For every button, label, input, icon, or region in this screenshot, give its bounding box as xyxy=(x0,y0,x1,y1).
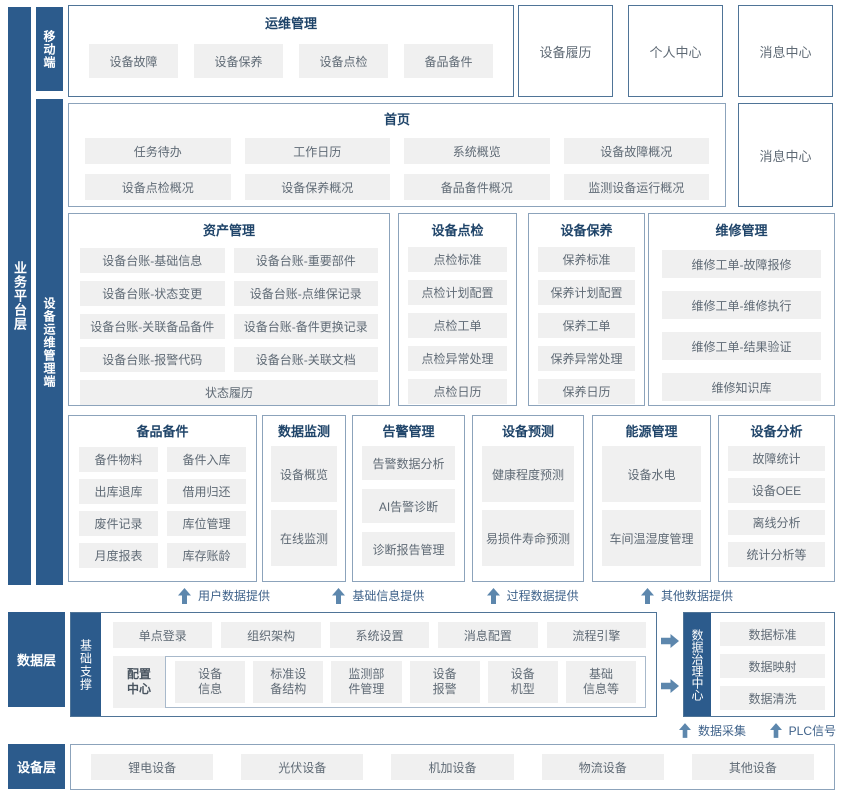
module-chip: 设备台账-关联备品备件 xyxy=(80,314,225,339)
module-chip: 数据映射 xyxy=(720,654,825,678)
bottom-flow-label: PLC信号 xyxy=(789,722,836,739)
module-chip: 其他设备 xyxy=(692,754,814,780)
layer-label-mobile: 移动端 xyxy=(41,30,58,69)
section-title-energy: 能源管理 xyxy=(602,422,701,442)
module-chip: 备品备件概况 xyxy=(404,174,550,200)
layer-label-ops-management: 设备运维管理端 xyxy=(41,297,58,388)
section-analysis: 设备分析 故障统计 设备OEE 离线分析 统计分析等 xyxy=(718,415,835,582)
section-title-analysis: 设备分析 xyxy=(728,422,825,442)
section-data-governance: 数据治理中心 数据标准 数据映射 数据清洗 xyxy=(683,612,835,717)
box-message-center: 消息中心 xyxy=(738,5,833,97)
up-arrow-icon xyxy=(641,588,654,604)
module-chip: 设备 报警 xyxy=(410,661,480,703)
module-chip: 点检标准 xyxy=(408,247,507,272)
layer-label-business-platform: 业务平台层 xyxy=(10,261,29,331)
module-chip: 诊断报告管理 xyxy=(362,532,455,566)
bottom-flow-label: 数据采集 xyxy=(698,722,746,739)
module-chip: 保养日历 xyxy=(538,379,635,404)
section-title-repair: 维修管理 xyxy=(662,221,821,241)
module-chip: 维修工单-结果验证 xyxy=(662,332,821,360)
section-spare: 备品备件 备件物料 备件入库 出库退库 借用归还 废件记录 库位管理 月度报表 … xyxy=(68,415,257,582)
module-chip: 告警数据分析 xyxy=(362,446,455,480)
section-base-support: 基础支撑 单点登录 组织架构 系统设置 消息配置 流程引擎 配置 中心 设备 信… xyxy=(70,612,657,717)
module-chip: 设备故障概况 xyxy=(564,138,710,164)
section-title-predict: 设备预测 xyxy=(482,422,574,442)
module-chip: 监测部 件管理 xyxy=(331,661,401,703)
module-chip: 设备台账-状态变更 xyxy=(80,281,225,306)
bottom-flow-group: 数据采集 xyxy=(679,722,746,739)
layer-label-device: 设备层 xyxy=(17,757,56,776)
module-chip: 维修知识库 xyxy=(662,373,821,401)
module-chip: 物流设备 xyxy=(542,754,664,780)
module-chip: 状态履历 xyxy=(80,380,378,405)
section-energy: 能源管理 设备水电 车间温湿度管理 xyxy=(592,415,711,582)
section-repair: 维修管理 维修工单-故障报修 维修工单-维修执行 维修工单-结果验证 维修知识库 xyxy=(648,213,835,406)
data-flow-label: 其他数据提供 xyxy=(661,587,733,604)
module-chip: 设备台账-备件更换记录 xyxy=(234,314,379,339)
module-chip: 设备点检概况 xyxy=(85,174,231,200)
module-chip: 设备保养概况 xyxy=(245,174,391,200)
module-chip: 机加设备 xyxy=(391,754,513,780)
up-arrow-icon xyxy=(178,588,191,604)
module-chip: 基础 信息等 xyxy=(566,661,636,703)
layer-bar-data-governance: 数据治理中心 xyxy=(684,613,711,716)
data-flow-label: 过程数据提供 xyxy=(507,587,579,604)
section-upkeep: 设备保养 保养标准 保养计划配置 保养工单 保养异常处理 保养日历 xyxy=(528,213,645,406)
module-chip: 流程引擎 xyxy=(547,622,646,648)
module-chip: AI告警诊断 xyxy=(362,489,455,523)
layer-bar-device: 设备层 xyxy=(8,744,65,789)
module-chip: 健康程度预测 xyxy=(482,446,574,502)
data-flow-group: 基础信息提供 xyxy=(332,587,424,604)
right-arrow-icon xyxy=(661,634,679,648)
layer-label-data-governance: 数据治理中心 xyxy=(689,629,706,701)
up-arrow-icon xyxy=(487,588,500,604)
module-chip: 设备台账-点维保记录 xyxy=(234,281,379,306)
module-chip: 光伏设备 xyxy=(241,754,363,780)
section-title-asset: 资产管理 xyxy=(69,221,389,241)
box-device-history: 设备履历 xyxy=(518,5,613,97)
section-mobile-ops: 运维管理 设备故障 设备保养 设备点检 备品备件 xyxy=(68,5,514,97)
section-title-upkeep: 设备保养 xyxy=(538,221,635,241)
module-chip: 数据清洗 xyxy=(720,686,825,710)
module-chip: 维修工单-维修执行 xyxy=(662,291,821,319)
module-chip: 系统概览 xyxy=(404,138,550,164)
module-chip: 保养计划配置 xyxy=(538,280,635,305)
module-chip: 系统设置 xyxy=(330,622,429,648)
module-chip: 设备保养 xyxy=(194,44,283,78)
module-chip: 保养工单 xyxy=(538,313,635,338)
module-chip: 库位管理 xyxy=(167,511,246,536)
section-title-inspection: 设备点检 xyxy=(408,221,507,241)
module-chip: 监测设备运行概况 xyxy=(564,174,710,200)
up-arrow-icon xyxy=(679,723,691,738)
module-chip: 车间温湿度管理 xyxy=(602,510,701,566)
architecture-diagram: 业务平台层 移动端 设备运维管理端 数据层 设备层 运维管理 设备故障 设备保养… xyxy=(0,0,841,794)
layer-bar-ops-management: 设备运维管理端 xyxy=(36,99,63,585)
section-alarm: 告警管理 告警数据分析 AI告警诊断 诊断报告管理 xyxy=(352,415,465,582)
module-chip: 点检异常处理 xyxy=(408,346,507,371)
module-chip: 维修工单-故障报修 xyxy=(662,250,821,278)
module-chip-config-center: 配置 中心 xyxy=(113,656,165,708)
module-chip: 设备台账-报警代码 xyxy=(80,347,225,372)
module-chip: 点检日历 xyxy=(408,379,507,404)
section-monitor: 数据监测 设备概览 在线监测 xyxy=(262,415,346,582)
layer-label-base-support: 基础支撑 xyxy=(78,639,95,691)
module-chip: 设备台账-基础信息 xyxy=(80,248,225,273)
section-title-home: 首页 xyxy=(69,110,725,130)
layer-bar-data: 数据层 xyxy=(8,612,65,707)
module-chip: 组织架构 xyxy=(221,622,320,648)
layer-label-data: 数据层 xyxy=(17,650,56,669)
module-chip: 数据标准 xyxy=(720,622,825,646)
module-chip: 设备概览 xyxy=(271,446,337,502)
data-flow-label: 基础信息提供 xyxy=(352,587,424,604)
module-chip: 设备台账-重要部件 xyxy=(234,248,379,273)
module-chip: 消息配置 xyxy=(438,622,537,648)
module-chip: 设备 机型 xyxy=(488,661,558,703)
module-chip: 保养异常处理 xyxy=(538,346,635,371)
module-chip: 借用归还 xyxy=(167,479,246,504)
module-chip: 离线分析 xyxy=(728,510,825,535)
up-arrow-icon xyxy=(332,588,345,604)
section-title-monitor: 数据监测 xyxy=(271,422,337,442)
section-title-spare: 备品备件 xyxy=(69,422,256,442)
module-chip: 废件记录 xyxy=(79,511,158,536)
module-chip: 工作日历 xyxy=(245,138,391,164)
section-title-alarm: 告警管理 xyxy=(362,422,455,442)
module-chip: 出库退库 xyxy=(79,479,158,504)
module-chip: 设备OEE xyxy=(728,478,825,503)
module-chip: 备件物料 xyxy=(79,447,158,472)
layer-bar-mobile: 移动端 xyxy=(36,7,63,91)
box-personal-center: 个人中心 xyxy=(628,5,723,97)
module-chip: 备件入库 xyxy=(167,447,246,472)
section-title-mobile-ops: 运维管理 xyxy=(69,14,513,34)
module-chip: 标准设 备结构 xyxy=(253,661,323,703)
module-chip: 易损件寿命预测 xyxy=(482,510,574,566)
section-asset: 资产管理 设备台账-基础信息 设备台账-重要部件 设备台账-状态变更 设备台账-… xyxy=(68,213,390,406)
right-arrow-icon xyxy=(661,679,679,693)
module-chip: 月度报表 xyxy=(79,543,158,568)
box-message-center-2: 消息中心 xyxy=(738,103,833,207)
module-chip: 设备点检 xyxy=(299,44,388,78)
module-chip: 设备 信息 xyxy=(175,661,245,703)
module-chip: 设备台账-关联文档 xyxy=(234,347,379,372)
section-predict: 设备预测 健康程度预测 易损件寿命预测 xyxy=(472,415,584,582)
module-chip: 库存账龄 xyxy=(167,543,246,568)
module-chip: 在线监测 xyxy=(271,510,337,566)
bottom-flow-group: PLC信号 xyxy=(770,722,836,739)
module-chip: 点检工单 xyxy=(408,313,507,338)
section-inspection: 设备点检 点检标准 点检计划配置 点检工单 点检异常处理 点检日历 xyxy=(398,213,517,406)
layer-bar-business-platform: 业务平台层 xyxy=(8,7,31,585)
module-chip: 故障统计 xyxy=(728,446,825,471)
section-device-layer: 锂电设备 光伏设备 机加设备 物流设备 其他设备 xyxy=(70,744,835,790)
module-chip: 统计分析等 xyxy=(728,542,825,567)
module-chip: 锂电设备 xyxy=(91,754,213,780)
data-flow-group: 用户数据提供 xyxy=(178,587,270,604)
module-chip: 点检计划配置 xyxy=(408,280,507,305)
module-chip: 单点登录 xyxy=(113,622,212,648)
data-flow-row: 用户数据提供 基础信息提供 过程数据提供 其他数据提供 xyxy=(178,587,733,604)
bottom-flow-row: 数据采集 PLC信号 xyxy=(679,722,836,739)
layer-bar-base-support: 基础支撑 xyxy=(71,613,101,716)
data-flow-group: 其他数据提供 xyxy=(641,587,733,604)
section-home: 首页 任务待办 工作日历 系统概览 设备故障概况 设备点检概况 设备保养概况 备… xyxy=(68,103,726,207)
module-chip: 保养标准 xyxy=(538,247,635,272)
module-chip: 设备故障 xyxy=(89,44,178,78)
module-chip: 备品备件 xyxy=(404,44,493,78)
data-flow-label: 用户数据提供 xyxy=(198,587,270,604)
up-arrow-icon xyxy=(770,723,782,738)
module-chip: 任务待办 xyxy=(85,138,231,164)
data-flow-group: 过程数据提供 xyxy=(487,587,579,604)
module-chip: 设备水电 xyxy=(602,446,701,502)
